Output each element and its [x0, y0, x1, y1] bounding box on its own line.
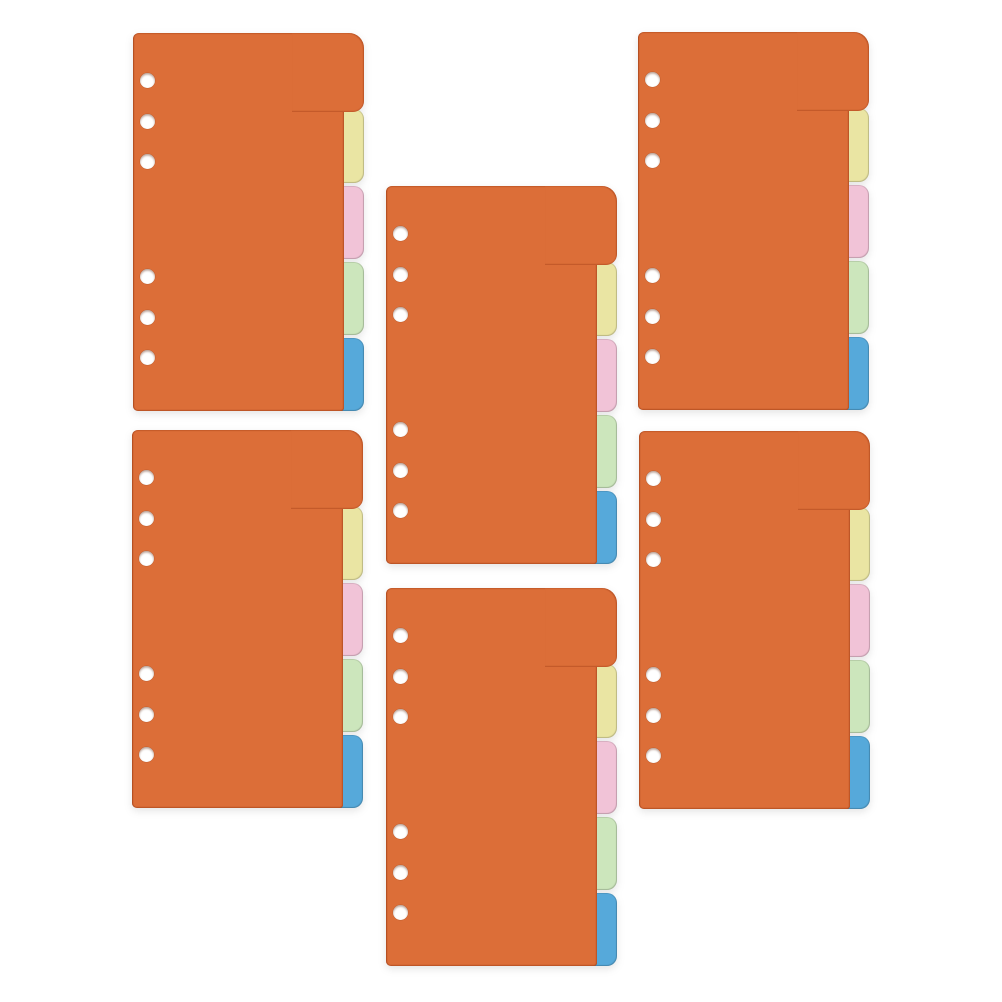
punch-hole [645, 113, 660, 128]
punch-hole [393, 463, 408, 478]
punch-hole [140, 114, 155, 129]
punch-hole [139, 666, 154, 681]
punch-hole [393, 865, 408, 880]
punch-hole [393, 709, 408, 724]
punch-hole [140, 154, 155, 169]
orange-index-tab [292, 33, 364, 112]
orange-index-tab [545, 186, 617, 265]
punch-hole [393, 824, 408, 839]
punch-hole [645, 268, 660, 283]
divider-set-bottom-right [639, 431, 870, 809]
punch-hole [139, 470, 154, 485]
punch-hole [140, 350, 155, 365]
divider-set-middle-upper [386, 186, 617, 564]
orange-index-tab [545, 588, 617, 667]
punch-hole [646, 667, 661, 682]
punch-hole [646, 512, 661, 527]
punch-hole [646, 748, 661, 763]
punch-hole [139, 511, 154, 526]
orange-index-tab [798, 431, 870, 510]
punch-hole [393, 503, 408, 518]
divider-set-middle-lower [386, 588, 617, 966]
punch-hole [646, 552, 661, 567]
punch-hole [140, 73, 155, 88]
divider-set-bottom-left [132, 430, 363, 808]
punch-hole [645, 349, 660, 364]
punch-hole [393, 669, 408, 684]
punch-hole [393, 226, 408, 241]
punch-hole [393, 905, 408, 920]
punch-hole [645, 153, 660, 168]
punch-hole [139, 551, 154, 566]
punch-hole [393, 267, 408, 282]
punch-hole [645, 72, 660, 87]
divider-set-top-right [638, 32, 869, 410]
punch-hole [139, 747, 154, 762]
punch-hole [645, 309, 660, 324]
orange-index-tab [797, 32, 869, 111]
punch-hole [646, 708, 661, 723]
punch-hole [393, 307, 408, 322]
punch-hole [393, 628, 408, 643]
orange-index-tab [291, 430, 363, 509]
divider-set-top-left [133, 33, 364, 411]
punch-hole [646, 471, 661, 486]
punch-hole [140, 310, 155, 325]
punch-hole [393, 422, 408, 437]
punch-hole [139, 707, 154, 722]
product-photo [0, 0, 1002, 1002]
punch-hole [140, 269, 155, 284]
